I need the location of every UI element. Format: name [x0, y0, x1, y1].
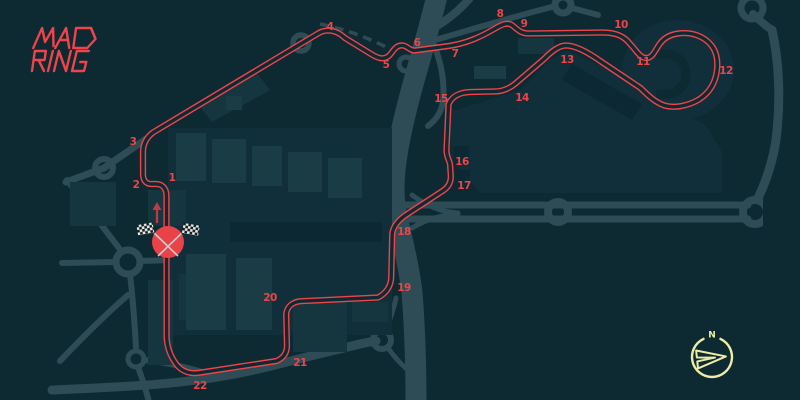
corner-label-3: 3	[130, 136, 137, 148]
corner-label-18: 18	[397, 226, 411, 238]
corner-label-5: 5	[383, 59, 390, 71]
corner-label-14: 14	[515, 92, 529, 104]
corner-label-7: 7	[452, 48, 459, 60]
corner-label-12: 12	[719, 65, 733, 77]
corner-label-15: 15	[434, 93, 448, 105]
corner-label-9: 9	[521, 18, 528, 30]
corner-label-22: 22	[193, 380, 207, 392]
corner-label-1: 1	[169, 172, 176, 184]
corner-label-17: 17	[457, 180, 471, 192]
corner-label-21: 21	[293, 357, 307, 369]
corner-label-11: 11	[636, 56, 650, 68]
central-hall	[230, 222, 382, 242]
start-finish-circle	[152, 226, 184, 258]
corner-label-8: 8	[497, 8, 504, 20]
corner-label-16: 16	[455, 156, 469, 168]
corner-label-19: 19	[397, 282, 411, 294]
corner-label-2: 2	[133, 179, 140, 191]
corner-label-13: 13	[560, 54, 574, 66]
north-label: N	[708, 331, 716, 341]
corner-label-6: 6	[414, 37, 421, 49]
corner-label-4: 4	[327, 21, 334, 33]
circuit-map: 1 2 3 4 5 6 7 8 9 10 11 12 13 14 15 16 1…	[0, 0, 800, 400]
corner-label-20: 20	[263, 292, 277, 304]
circuit-map-page: 1 2 3 4 5 6 7 8 9 10 11 12 13 14 15 16 1…	[0, 0, 800, 400]
corner-label-10: 10	[614, 19, 628, 31]
